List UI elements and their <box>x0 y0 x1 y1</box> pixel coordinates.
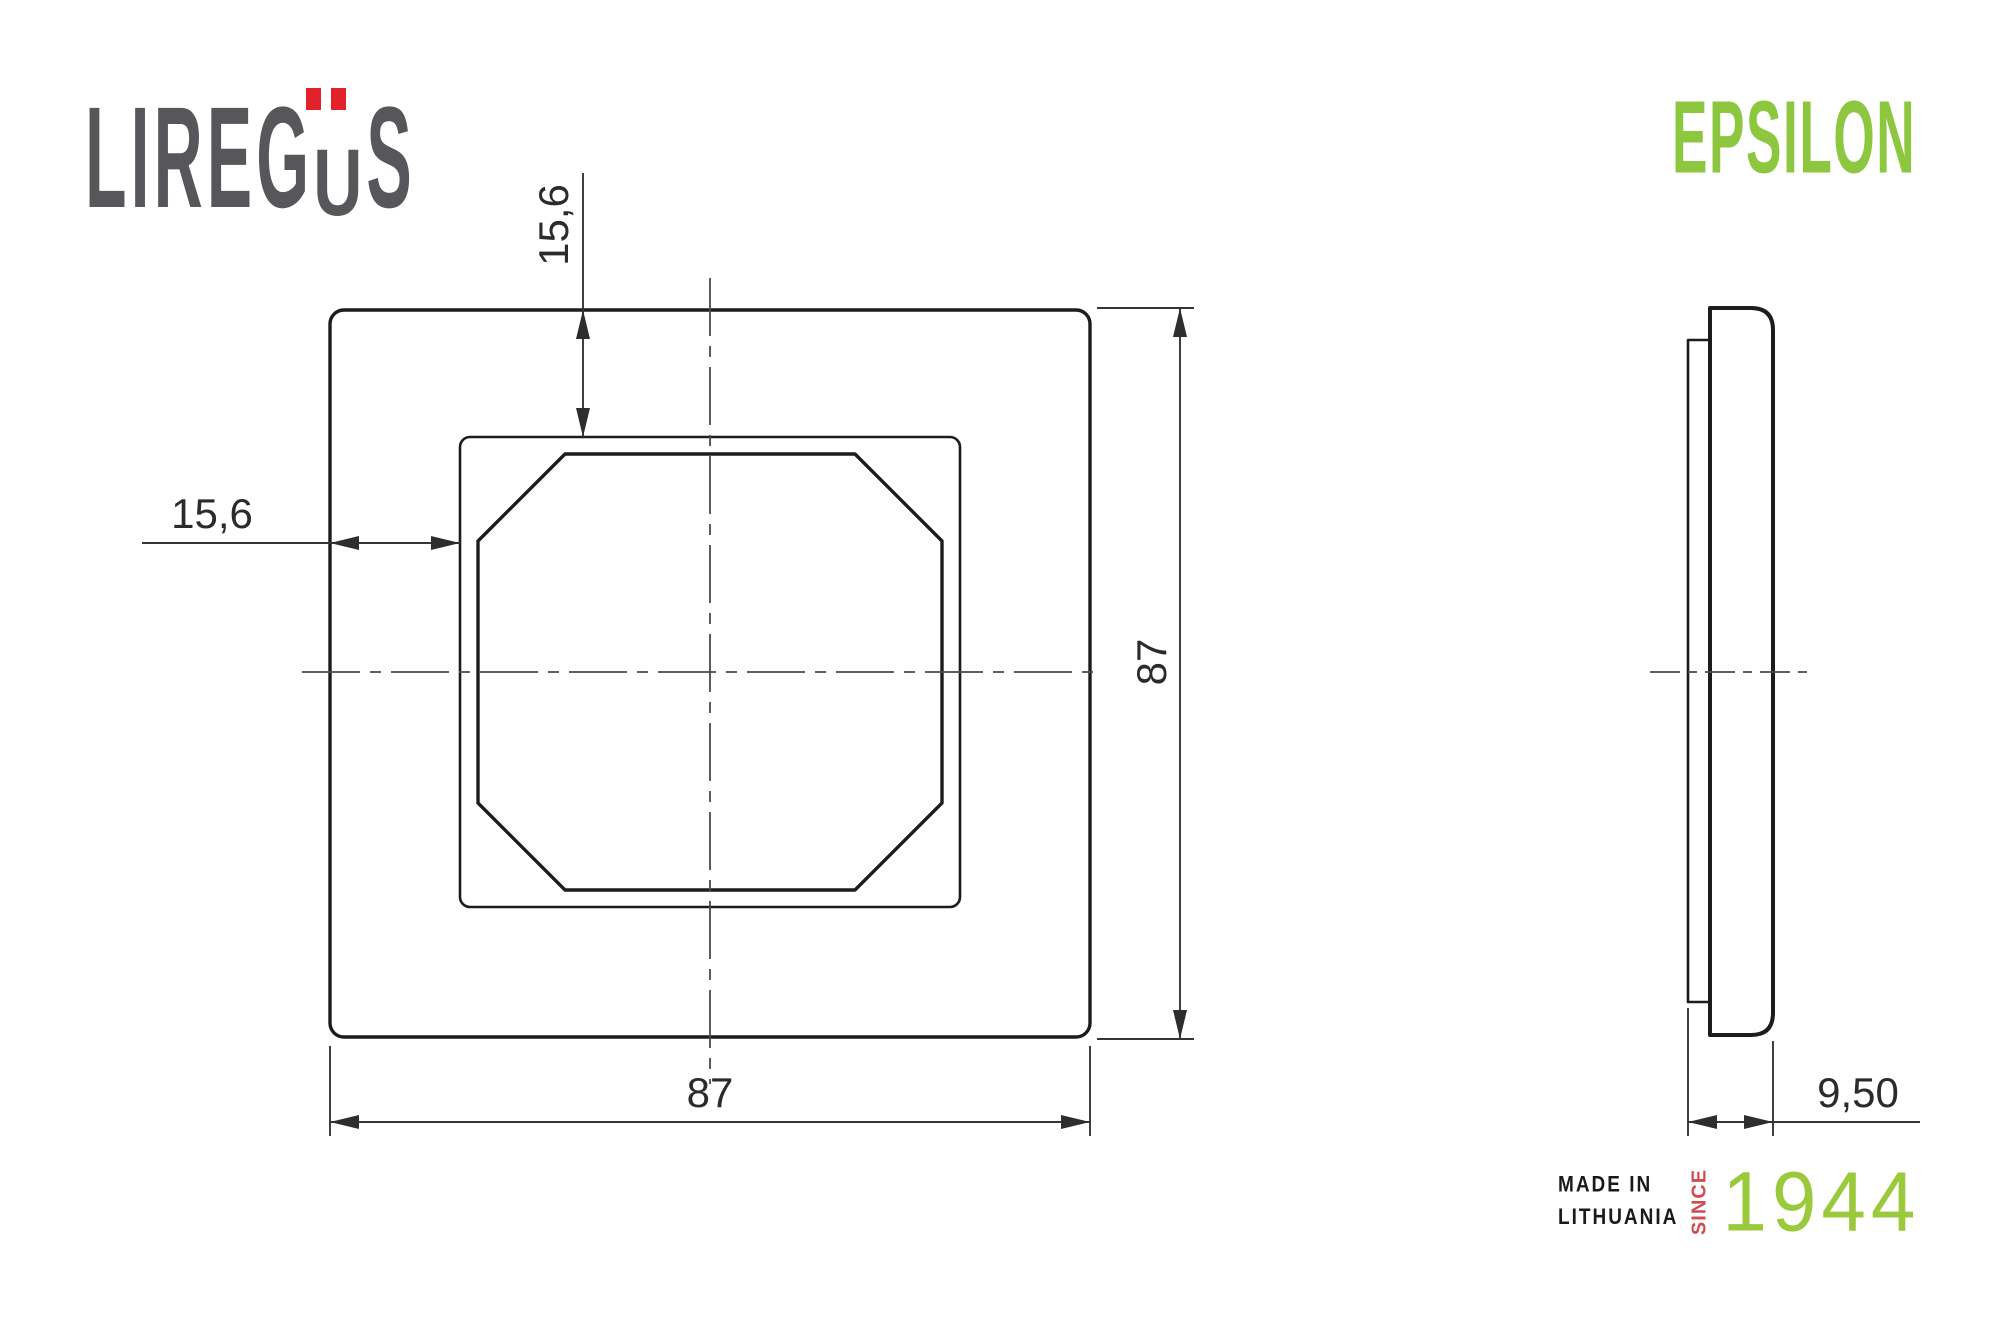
datasheet-page: LIREGUS EPSILON 15,6 15,6 <box>0 0 2000 1333</box>
footer-branding: MADE IN LITHUANIA SINCE 1944 <box>1558 1162 1920 1242</box>
dim-right-arrow-down-icon <box>1173 1010 1187 1039</box>
dimension-left-offset: 15,6 <box>142 490 460 550</box>
made-in-line1: MADE IN <box>1558 1170 1678 1202</box>
made-in-text: MADE IN LITHUANIA <box>1558 1170 1678 1233</box>
dim-side-label: 9,50 <box>1817 1069 1899 1116</box>
technical-drawing: 15,6 15,6 87 87 <box>0 0 2000 1333</box>
dimension-overall-height: 87 <box>1097 308 1194 1039</box>
dim-bottom-arrow-right-icon <box>1061 1115 1090 1129</box>
dimension-top-offset: 15,6 <box>530 173 590 437</box>
made-in-line2: LITHUANIA <box>1558 1202 1678 1234</box>
dim-bottom-label: 87 <box>687 1069 734 1116</box>
since-year: 1944 <box>1722 1160 1920 1244</box>
side-back-plate <box>1688 340 1710 1002</box>
dim-left-arrow-right-icon <box>431 536 460 550</box>
dim-top-label: 15,6 <box>530 184 577 266</box>
since-label-wrap: SINCE <box>1678 1162 1722 1242</box>
side-view <box>1650 308 1808 1035</box>
dim-side-arrow-right-icon <box>1744 1115 1773 1129</box>
dim-bottom-arrow-left-icon <box>330 1115 359 1129</box>
dim-right-label: 87 <box>1128 639 1175 686</box>
dim-side-arrow-left-icon <box>1688 1115 1717 1129</box>
dim-top-arrow-up-icon <box>576 310 590 339</box>
dimension-thickness: 9,50 <box>1688 1008 1920 1136</box>
front-view <box>302 278 1103 1084</box>
since-label: SINCE <box>1689 1169 1712 1235</box>
dim-left-arrow-left-icon <box>330 536 359 550</box>
dim-top-arrow-down-icon <box>576 408 590 437</box>
dim-right-arrow-up-icon <box>1173 308 1187 337</box>
dim-left-label: 15,6 <box>171 490 253 537</box>
